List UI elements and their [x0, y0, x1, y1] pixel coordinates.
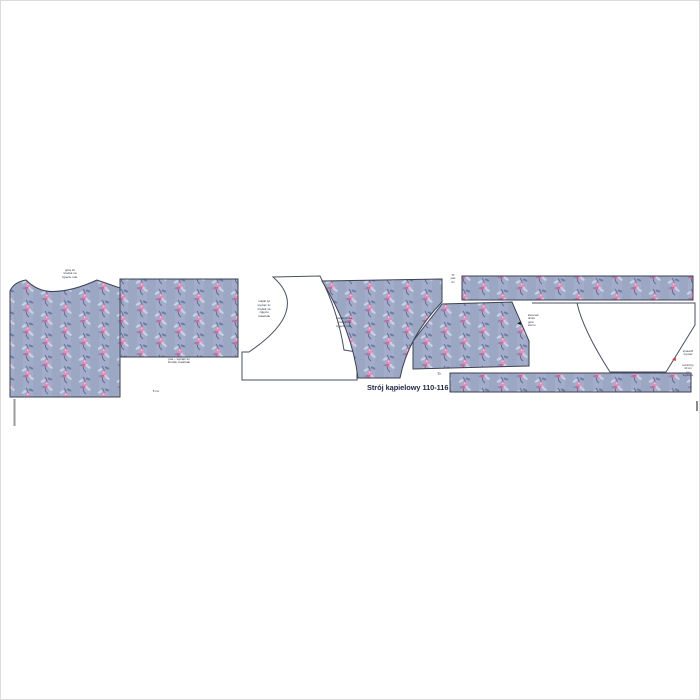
pattern-piece-strip-bottom — [450, 373, 691, 392]
fabric-bottoms-label: majtki przód środek na zgięciu mat. — [330, 317, 358, 328]
pattern-piece-bodice — [10, 280, 120, 397]
black-arrow-note: kierunek druku góra wzoru — [528, 314, 554, 328]
white-bottoms-label: majtki tył wyciąć 1x środek na zgięciu m… — [251, 300, 277, 319]
pattern-layout-preview: góra 2x środek na zgięciu mat. pas – wyc… — [0, 0, 700, 700]
band-piece-label: pas – wyciąć 1x środek materiału — [160, 358, 198, 366]
bodice-piece-label: góra 2x środek na zgięciu mat. — [52, 269, 88, 280]
pattern-pieces-graphic — [0, 0, 700, 700]
pattern-piece-band-rect — [120, 279, 238, 357]
direction-arrow-black-icon: ◄ — [516, 321, 522, 327]
pattern-title: Strój kąpielowy 110-116 — [367, 383, 448, 392]
fold-mark: Tł: — [437, 371, 441, 376]
pattern-piece-strip-top — [462, 276, 693, 300]
small-measure-note: 5 cm — [148, 390, 164, 394]
top-strip-note: Tł: pas 2x — [446, 274, 460, 285]
red-arrow-note: sprawdź wymiar kontrolny 10 cm po wydruk… — [677, 350, 699, 378]
